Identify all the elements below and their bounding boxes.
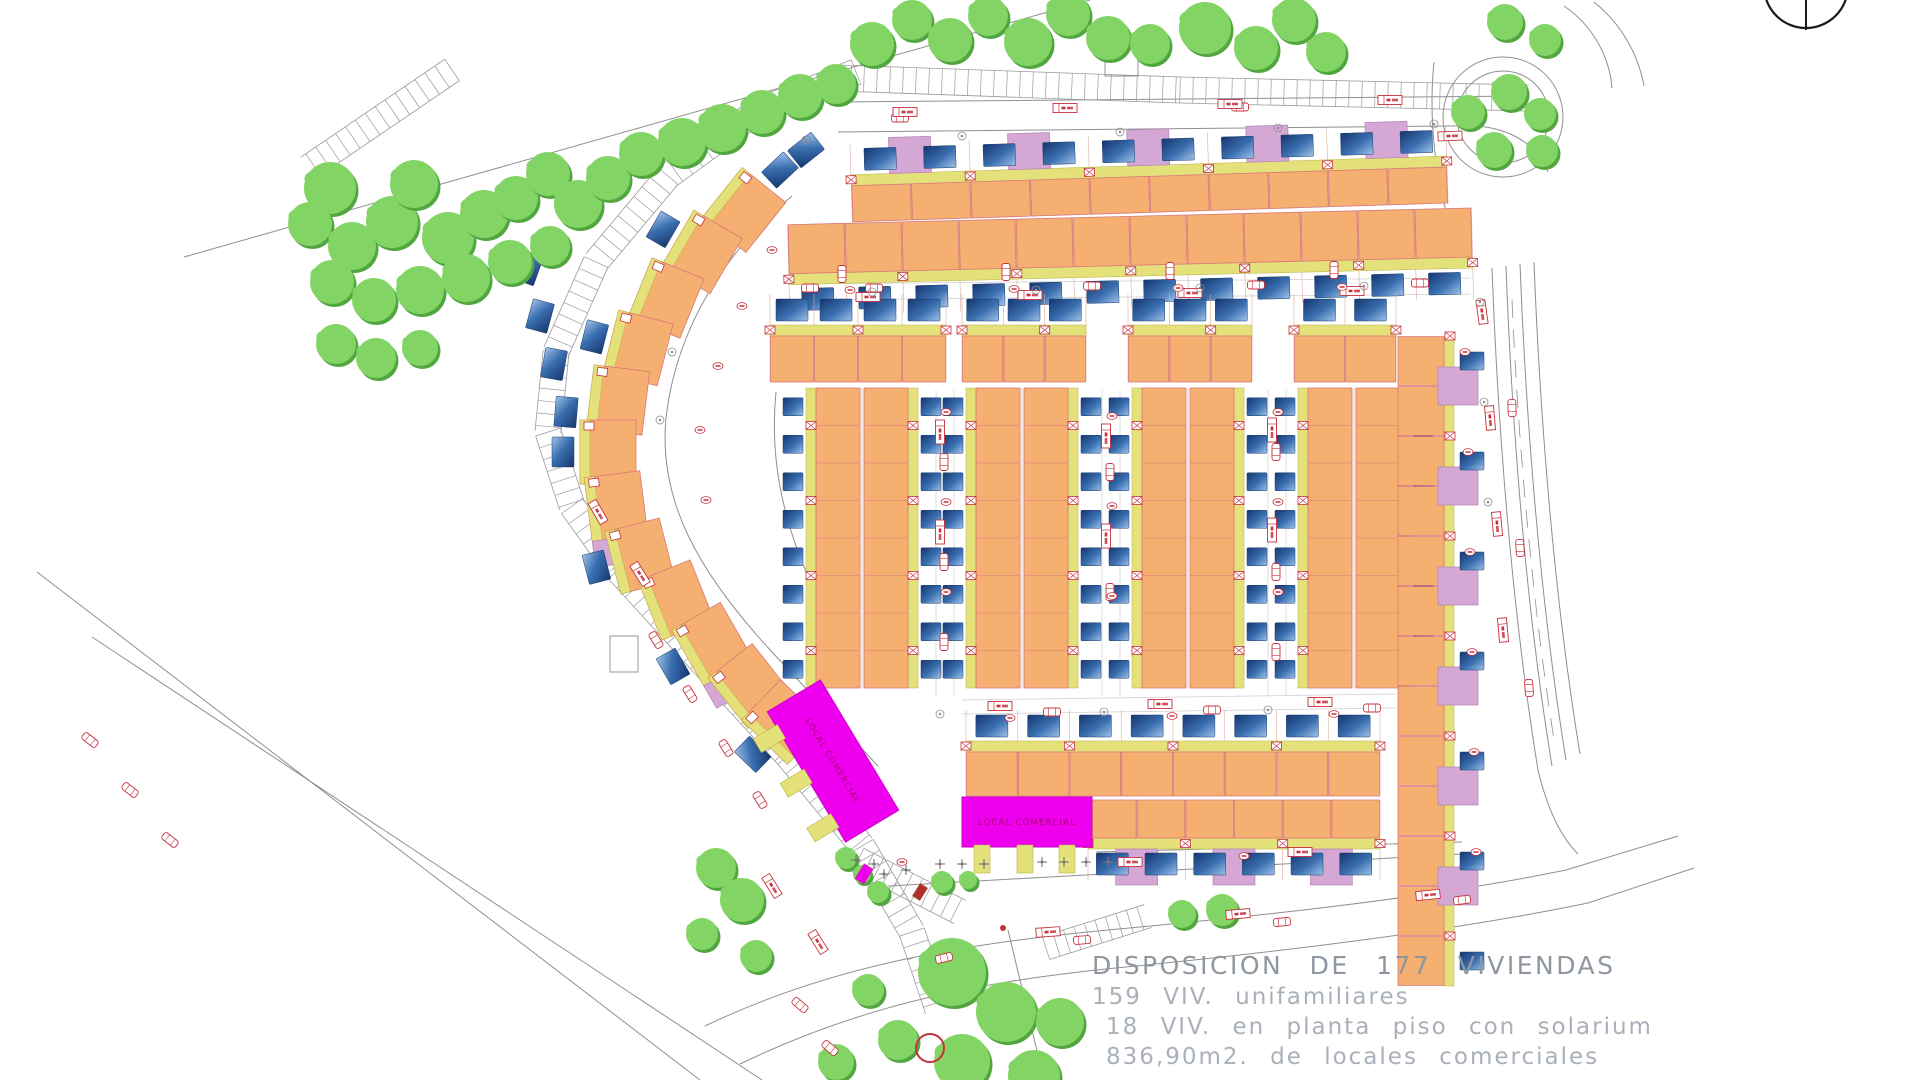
tree	[396, 275, 409, 288]
commercial-entrance	[1017, 845, 1033, 873]
car-icon	[1002, 264, 1010, 281]
streetlight-icon	[961, 863, 964, 866]
street-label	[893, 108, 917, 117]
tree	[835, 847, 857, 869]
pool	[1028, 715, 1060, 737]
pool	[1275, 623, 1295, 641]
pool	[921, 473, 941, 491]
tree	[1487, 4, 1523, 40]
parking-stall-line	[425, 73, 440, 94]
pool	[1133, 299, 1165, 321]
road-line	[37, 572, 700, 1080]
lot-number-marker	[1276, 591, 1281, 593]
patio-strip	[1234, 388, 1244, 688]
tree	[1180, 12, 1195, 27]
solarium-block	[1438, 667, 1478, 705]
solarium-block	[1438, 567, 1478, 605]
tree	[850, 22, 894, 66]
parking-stall-line	[1427, 83, 1428, 109]
car-icon	[752, 791, 768, 810]
house-block	[1295, 336, 1345, 382]
street-label	[1495, 520, 1498, 524]
lot-number-marker	[1276, 501, 1281, 503]
street-label	[1102, 524, 1111, 548]
lot-number-marker	[1242, 855, 1247, 857]
house-block	[852, 184, 912, 222]
car-icon	[1073, 935, 1091, 944]
car-icon	[1364, 704, 1381, 712]
streetlight-icon	[873, 863, 876, 866]
house-block	[1329, 752, 1380, 796]
tree	[356, 338, 396, 378]
manhole-marker	[1487, 501, 1490, 504]
pool	[967, 299, 999, 321]
pool	[552, 437, 574, 467]
parking-stall-line	[980, 70, 981, 96]
car-icon	[161, 832, 179, 849]
street-label	[1491, 512, 1502, 537]
car-icon	[81, 732, 99, 749]
tree	[867, 881, 889, 903]
car-icon	[1166, 263, 1174, 280]
car-icon	[1106, 464, 1114, 481]
car-icon	[802, 284, 819, 292]
lot-number-marker	[770, 249, 775, 251]
car-icon	[802, 284, 819, 292]
parking-stall-line	[536, 428, 561, 436]
pool	[1460, 852, 1484, 870]
street-label	[1387, 99, 1391, 102]
pool-rotated	[554, 396, 578, 428]
lot-number-marker	[1110, 595, 1115, 597]
tree	[1234, 26, 1278, 70]
house-block	[959, 219, 1016, 269]
tree	[878, 1020, 918, 1060]
pool	[943, 473, 963, 491]
street-label	[1501, 626, 1504, 630]
pool	[1340, 853, 1372, 875]
pool	[1081, 435, 1101, 453]
parking-stall-line	[561, 498, 582, 513]
tree	[1009, 1060, 1024, 1075]
street-label	[865, 296, 869, 299]
street-label	[1067, 107, 1073, 110]
parking-stall-line	[445, 59, 460, 80]
streetlight-icon	[939, 863, 942, 866]
house-block	[1045, 336, 1085, 382]
pool	[1428, 272, 1461, 295]
house-row	[1123, 294, 1252, 382]
pool	[783, 585, 803, 603]
tree	[1487, 11, 1497, 21]
tree	[740, 940, 772, 972]
house-block	[1004, 336, 1044, 382]
pool	[1247, 548, 1267, 566]
parking-stall-line	[1058, 73, 1059, 99]
lot-number-marker	[740, 305, 745, 307]
house-block	[1398, 537, 1444, 586]
street-label	[1502, 632, 1505, 638]
tree	[816, 64, 856, 104]
parking-stall-line	[1271, 79, 1272, 105]
tree	[686, 924, 695, 933]
house-block	[1398, 487, 1444, 536]
tree	[352, 286, 364, 298]
pool-rotated	[525, 299, 554, 334]
pool	[1081, 623, 1101, 641]
pool	[1400, 130, 1433, 153]
patio-strip	[966, 388, 976, 688]
parking-stall-line	[326, 140, 341, 161]
tree	[402, 330, 438, 366]
car-icon	[940, 554, 948, 571]
street-label	[1424, 894, 1428, 897]
parking-stall-line	[1053, 933, 1060, 956]
tree	[931, 875, 937, 881]
tree	[390, 169, 403, 182]
pool	[1109, 660, 1129, 678]
house-block	[1332, 800, 1379, 838]
house-block	[1018, 752, 1069, 796]
pool	[921, 398, 941, 416]
street-label	[1018, 291, 1042, 300]
car-icon	[1044, 708, 1061, 716]
tree	[1526, 141, 1535, 150]
pool	[1247, 473, 1267, 491]
street-label	[1157, 703, 1161, 706]
pool	[1275, 473, 1295, 491]
house-row	[845, 120, 1453, 222]
tree	[554, 189, 567, 202]
pool	[1460, 452, 1484, 470]
house-block	[1031, 178, 1091, 216]
house-block	[859, 336, 902, 382]
parking-stall-line	[634, 196, 654, 213]
house-block	[1090, 176, 1150, 214]
house-block	[1244, 212, 1301, 262]
tree	[1491, 74, 1527, 110]
house-block	[903, 336, 946, 382]
pool	[1109, 623, 1129, 641]
house-block	[971, 180, 1031, 218]
pool	[1247, 398, 1267, 416]
house-block	[911, 182, 971, 220]
tree	[1206, 900, 1215, 909]
house-block	[1301, 211, 1358, 261]
tree	[310, 260, 354, 304]
street-label	[1187, 292, 1191, 295]
patio-strip	[1068, 388, 1078, 688]
parking-stall-line	[564, 302, 588, 313]
parking-stall-line	[1349, 81, 1350, 107]
car-icon	[1204, 706, 1221, 714]
manhole-marker	[1433, 123, 1436, 126]
house-block	[1277, 752, 1328, 796]
parking-stall-line	[928, 68, 929, 94]
parking-stall-line	[626, 206, 646, 223]
house-block	[1070, 752, 1121, 796]
parking-stall-line	[336, 134, 351, 155]
street-label	[1002, 705, 1008, 708]
tree	[1529, 30, 1538, 39]
street-label	[1416, 889, 1441, 900]
parking-stall-line	[1019, 71, 1020, 97]
site-plan-page: LOCAL COMERCIALLOCAL COMERCIAL DISPOSICI…	[0, 0, 1920, 1080]
street-label	[1484, 406, 1495, 431]
patio-strip	[1294, 325, 1396, 336]
tree	[402, 337, 412, 347]
tree	[1168, 905, 1176, 913]
streetlight-icon	[1107, 861, 1110, 864]
house-block	[815, 336, 858, 382]
car-icon	[1272, 444, 1280, 461]
lot-number-marker	[1110, 415, 1115, 417]
pool	[1275, 548, 1295, 566]
tree	[494, 184, 506, 196]
parking-stall-line	[900, 928, 925, 936]
street-label	[1302, 851, 1308, 854]
house-block	[1187, 214, 1244, 264]
parking-stall-line	[864, 66, 865, 92]
tree	[892, 7, 903, 18]
tree	[1272, 6, 1284, 18]
patio-strip	[908, 388, 918, 688]
pool	[1081, 585, 1101, 603]
pool	[1247, 660, 1267, 678]
tree	[918, 938, 986, 1006]
buildings-layer: LOCAL COMERCIALLOCAL COMERCIAL	[513, 120, 1484, 986]
entry-marker	[588, 478, 599, 487]
parking-stall-line	[539, 388, 565, 391]
manhole-marker	[1267, 709, 1270, 712]
pool	[943, 510, 963, 528]
parking-stall-line	[950, 898, 962, 921]
manhole-marker	[1035, 289, 1038, 292]
house-block	[1130, 215, 1187, 265]
house-block	[1209, 173, 1269, 211]
parking-stall-line	[549, 337, 573, 348]
house-block	[1073, 216, 1130, 266]
pool	[1109, 548, 1129, 566]
pool	[943, 660, 963, 678]
car-icon	[1073, 935, 1091, 944]
manhole-marker	[1103, 711, 1106, 714]
pool	[1200, 278, 1233, 301]
tree	[488, 248, 500, 260]
pool	[1008, 299, 1040, 321]
tree	[968, 3, 979, 14]
pool	[1079, 715, 1111, 737]
car-icon	[1453, 895, 1471, 905]
car-icon	[1524, 679, 1533, 697]
house-block	[967, 752, 1018, 796]
parking-stall-line	[345, 127, 360, 148]
parking-stall-line	[1071, 73, 1072, 99]
house-block	[1415, 208, 1472, 258]
rowhouse-column-group	[943, 388, 1101, 688]
car-icon	[1044, 708, 1061, 716]
house-row	[1289, 294, 1401, 382]
house-block	[788, 223, 845, 273]
house-row	[957, 294, 1086, 382]
pool	[1194, 853, 1226, 875]
street-label	[1148, 700, 1172, 709]
street-label	[1226, 908, 1251, 919]
plan-subtitle-1: 159 VIV. unifamiliares	[1092, 982, 1653, 1012]
car-icon	[161, 832, 179, 849]
pool	[1275, 660, 1295, 678]
tree	[696, 855, 707, 866]
plan-subtitle-3: 836,90m2. de locales comerciales	[1106, 1042, 1653, 1072]
tree	[740, 90, 784, 134]
car-icon	[838, 266, 846, 283]
street-label	[808, 929, 828, 954]
lot-number-marker	[1468, 551, 1473, 553]
solarium-block	[1438, 767, 1478, 805]
house-block	[1328, 169, 1388, 207]
tree	[310, 268, 322, 280]
street-label	[1105, 538, 1108, 544]
parking-stall-line	[602, 235, 622, 252]
lot-number-marker	[1276, 411, 1281, 413]
street-label	[1268, 518, 1277, 542]
plan-title: DISPOSICION DE 177 VIVIENDAS	[1092, 950, 1653, 982]
car-icon	[1204, 706, 1221, 714]
pool	[1304, 299, 1336, 321]
tree	[1491, 81, 1501, 91]
tree	[1168, 900, 1196, 928]
street-label	[1349, 290, 1353, 293]
street-label	[1105, 433, 1108, 437]
street-label	[1102, 424, 1111, 448]
car-icon	[1272, 444, 1280, 461]
parking-stall-line	[1105, 917, 1112, 940]
parking-stall-line	[1310, 80, 1311, 106]
lot-number-marker	[1170, 715, 1175, 717]
house-block	[1211, 336, 1251, 382]
street-label	[1105, 438, 1108, 444]
pool	[864, 147, 897, 170]
patio-strip	[806, 388, 816, 688]
road-line	[1594, 2, 1644, 86]
tree	[720, 878, 764, 922]
tree	[931, 871, 953, 893]
tree	[658, 127, 671, 140]
tree	[778, 82, 790, 94]
pool	[1145, 853, 1177, 875]
pool	[1275, 510, 1295, 528]
tree	[1306, 39, 1317, 50]
pool	[783, 623, 803, 641]
street-label	[1489, 420, 1492, 426]
parking-stall-line	[1323, 80, 1324, 106]
car-icon	[1516, 539, 1525, 556]
manhole-marker	[1199, 287, 1202, 290]
street-label	[1378, 96, 1402, 105]
house-block	[845, 222, 902, 272]
streetlight-icon	[905, 869, 908, 872]
street-label	[988, 702, 1012, 711]
tree	[852, 980, 861, 989]
parking-stall-line	[940, 893, 952, 916]
house-block	[1174, 752, 1225, 796]
car-icon	[1272, 564, 1280, 581]
parking-stall-line	[915, 68, 916, 94]
pool	[921, 660, 941, 678]
pool	[976, 715, 1008, 737]
street-label	[1162, 703, 1168, 706]
house-block	[963, 336, 1003, 382]
entry-marker	[597, 367, 608, 376]
street-label	[1271, 432, 1274, 438]
car-icon	[1002, 264, 1010, 281]
parking-stall-line	[555, 487, 580, 495]
streetlight-icon	[983, 863, 986, 866]
tree	[698, 113, 711, 126]
house-block	[1186, 800, 1233, 838]
house-block	[1129, 336, 1169, 382]
parking-stall-line	[1042, 937, 1049, 960]
tree	[892, 0, 932, 40]
pool	[1215, 299, 1247, 321]
car-icon	[940, 634, 948, 651]
tree	[919, 951, 938, 970]
parking-stall-line	[551, 476, 576, 484]
parking-stall-line	[1136, 75, 1137, 101]
parking-stall-line	[1297, 80, 1298, 106]
road-line	[1432, 62, 1452, 232]
tree	[316, 324, 356, 364]
street-label	[1297, 851, 1301, 854]
street-label	[1053, 104, 1077, 113]
car-icon	[1084, 282, 1101, 290]
road-line	[1492, 268, 1578, 854]
street-label	[1234, 913, 1238, 916]
street-label	[1271, 527, 1274, 531]
parking-stall-line	[1258, 79, 1259, 105]
road-line	[92, 637, 762, 1080]
car-icon	[1248, 281, 1265, 289]
pool	[1247, 623, 1267, 641]
streetlight-icon	[1063, 861, 1066, 864]
tree	[423, 222, 438, 237]
tree	[1306, 32, 1346, 72]
house-block	[1122, 752, 1173, 796]
tree	[442, 263, 455, 276]
tree	[1086, 24, 1098, 36]
patio-strip	[1088, 838, 1380, 849]
street-label	[1496, 526, 1499, 532]
car-icon	[682, 685, 698, 704]
parking-stall-line	[967, 70, 968, 96]
commercial-entrance	[1059, 845, 1075, 873]
car-icon	[1516, 539, 1525, 556]
parking-stall-line	[579, 268, 603, 279]
tree	[850, 30, 862, 42]
car-icon	[1272, 644, 1280, 661]
pool	[1081, 660, 1101, 678]
tree	[396, 266, 444, 314]
manhole-marker	[1483, 401, 1486, 404]
pool	[864, 299, 896, 321]
pool-rotated	[541, 347, 568, 380]
street-label	[1446, 135, 1450, 138]
lot-number-marker	[1470, 651, 1475, 653]
car-icon	[1453, 895, 1471, 905]
pool	[783, 660, 803, 678]
parking-stall-line	[1206, 78, 1207, 104]
parking-stall-line	[415, 80, 430, 101]
